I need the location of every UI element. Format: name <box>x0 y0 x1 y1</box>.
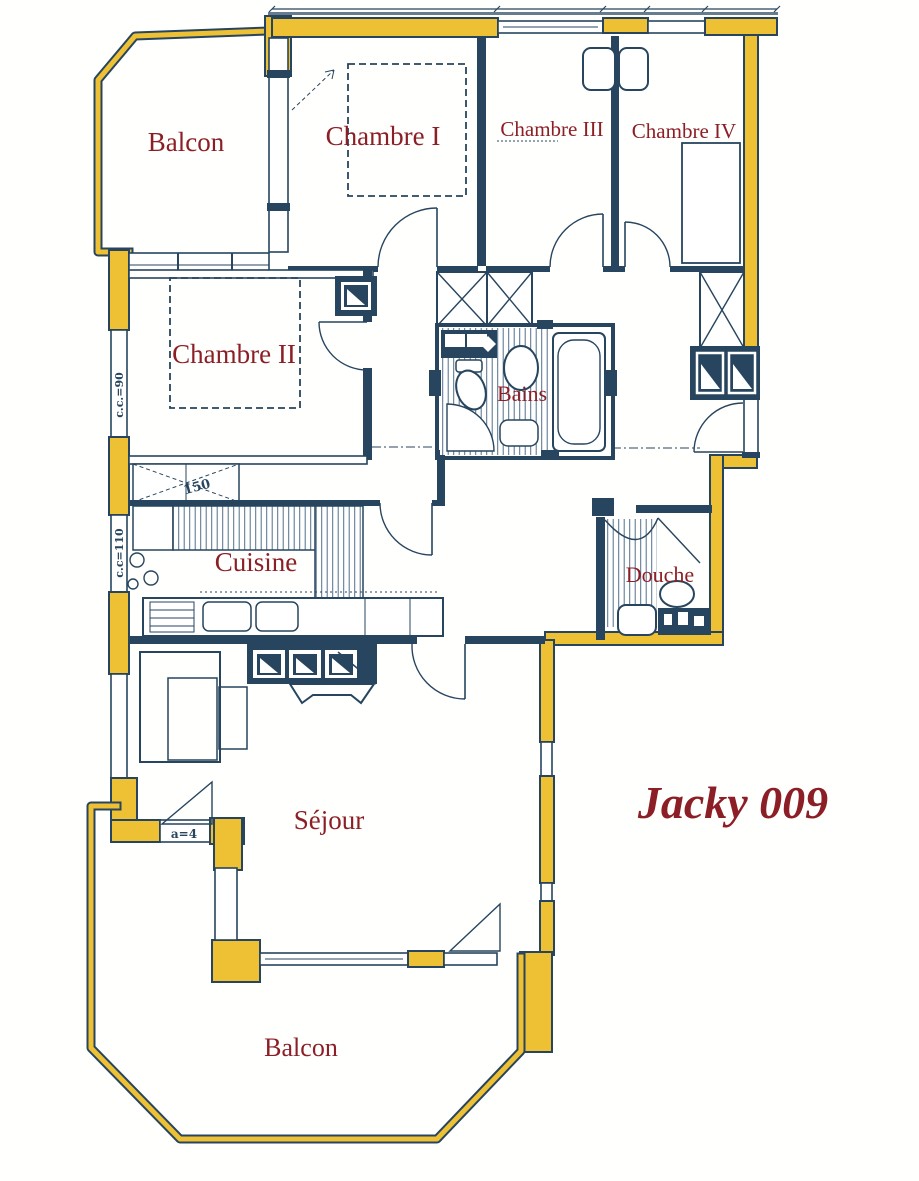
window-triangle-bottom <box>450 904 500 951</box>
wall-west-1 <box>109 250 129 330</box>
wall-top-c <box>705 18 777 35</box>
window-sejour-right-2 <box>541 883 552 901</box>
wall-sejour-right-1 <box>540 640 554 742</box>
wall-balcony-door-l2 <box>111 820 160 842</box>
label-balcon-top: Balcon <box>148 127 225 157</box>
floor-plan: Balcon Chambre I Chambre III Chambre IV … <box>0 0 919 1181</box>
wall-west-2 <box>109 437 129 515</box>
floor-plan-page: Balcon Chambre I Chambre III Chambre IV … <box>0 0 919 1181</box>
plan-title: Jacky 009 <box>637 777 828 828</box>
window-west-4 <box>215 868 237 940</box>
label-chambre-2: Chambre II <box>172 339 296 369</box>
balcony-bottom-rail <box>91 806 521 1139</box>
wall-sejour-bottom-mid <box>408 951 444 967</box>
door-entry <box>694 394 760 458</box>
wall-right-mid <box>710 455 723 645</box>
door-chambre-3 <box>550 214 603 267</box>
label-chambre-4: Chambre IV <box>632 119 736 143</box>
label-cuisine: Cuisine <box>215 547 298 577</box>
annotation-cc90: c.c.=90 <box>113 372 126 418</box>
fireplace <box>290 684 374 703</box>
wall-west-3 <box>109 592 129 674</box>
window-top-2 <box>648 21 705 33</box>
label-balcon-bottom: Balcon <box>264 1033 338 1062</box>
wall-sejour-right-3 <box>540 901 554 955</box>
annotation-cc110: c.c=110 <box>113 528 126 578</box>
wall-top-edge <box>268 12 778 15</box>
window-west-3 <box>111 674 127 778</box>
label-douche: Douche <box>626 562 694 587</box>
window-sejour-right-1 <box>541 742 552 776</box>
annotation-a4: a=4 <box>171 827 197 841</box>
label-sejour: Séjour <box>294 805 365 835</box>
door-cuisine <box>380 503 432 555</box>
window-triangle-left <box>162 782 212 824</box>
sejour-furniture <box>140 644 500 951</box>
label-bains: Bains <box>497 381 547 406</box>
window-sejour-bottom-2 <box>444 953 497 965</box>
wall-sejour-bottom-pier <box>212 940 260 982</box>
door-chambre-2 <box>319 322 367 370</box>
door-chambre-4 <box>625 222 670 267</box>
cabinet-entry <box>690 346 760 400</box>
label-chambre-1: Chambre I <box>326 121 441 151</box>
wall-balcony-door-r2 <box>214 818 242 870</box>
wall-top-a <box>272 18 498 37</box>
wall-top-b <box>603 18 648 33</box>
door-sejour <box>412 644 465 699</box>
door-chambre-1 <box>378 208 437 267</box>
wall-sejour-right-2 <box>540 776 554 883</box>
wall-right-upper <box>744 35 758 358</box>
dimension-line-top <box>269 6 780 12</box>
label-chambre-3: Chambre III <box>500 117 603 141</box>
